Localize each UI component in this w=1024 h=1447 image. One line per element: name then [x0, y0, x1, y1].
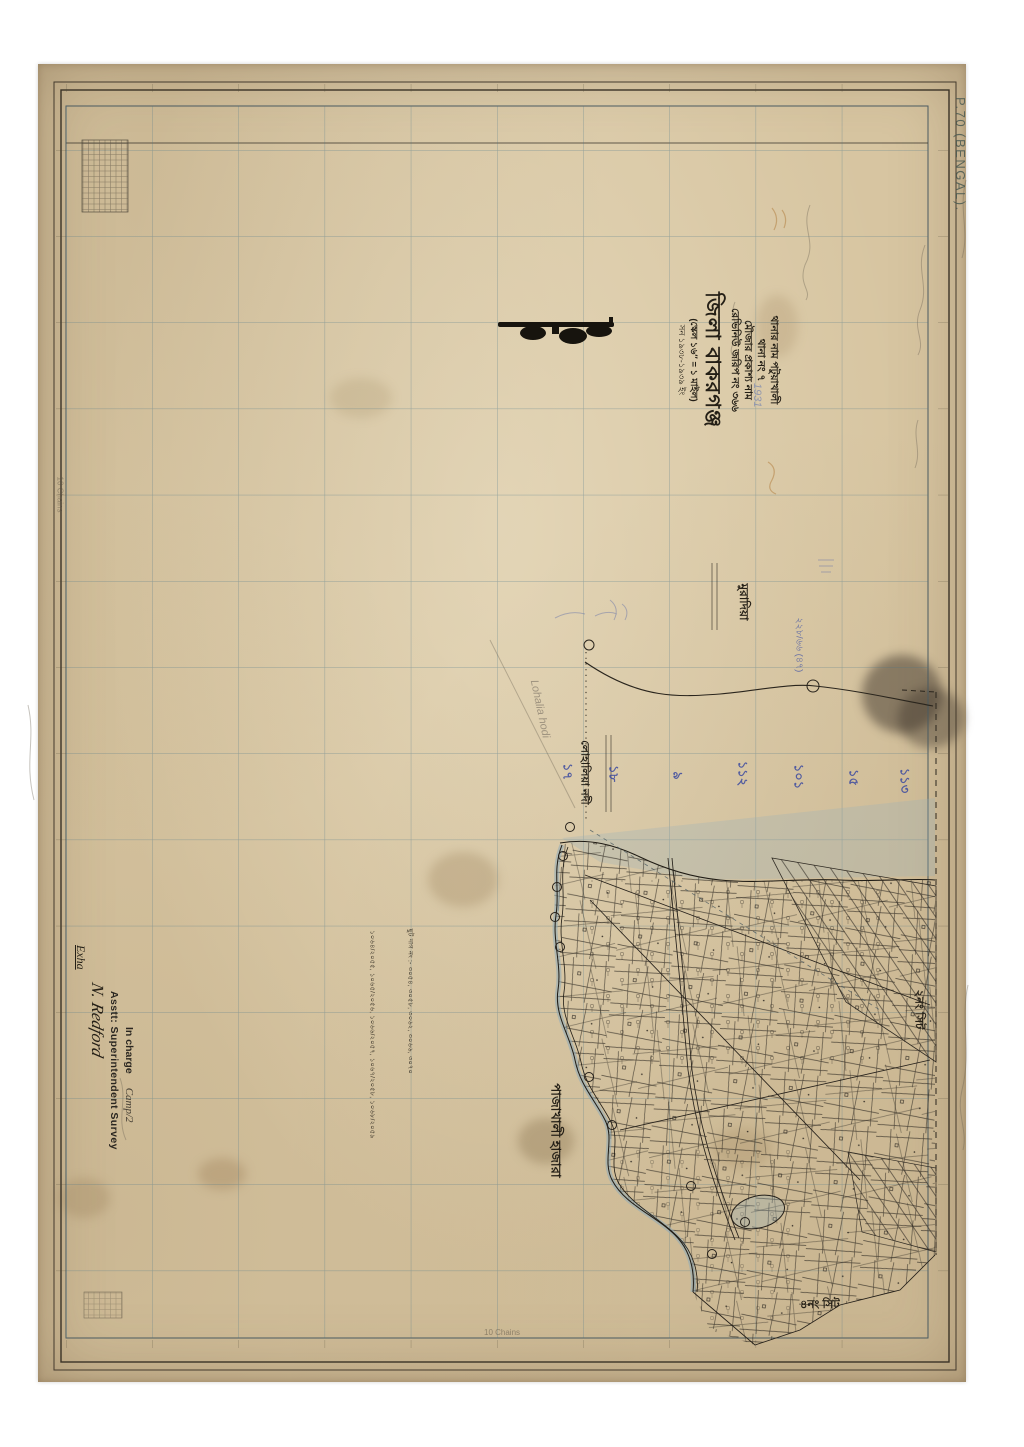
station-number: ৯ — [666, 763, 687, 789]
station-number: ১০১ — [787, 764, 808, 790]
title-block: থানার নাম পটুয়াখালী থানা নং ৭ মৌজার প্র… — [654, 280, 780, 440]
chains-scale-label-bottom: 10 Chains — [484, 1328, 520, 1337]
signature-block: In chargeCamp/2 Asstt: Superintendent Su… — [72, 935, 136, 1145]
village-label-pajakhali: পাজাখালী হাজারা — [544, 1076, 565, 1186]
year-line: সন ১৯৩৮-১৯৩৯ ইং — [676, 280, 687, 440]
map-linework — [0, 0, 1024, 1447]
station-number: ১৭ — [556, 759, 577, 785]
revenue-no-line: রেভিনিউ জরিপ নং ৩৬৬ — [728, 280, 741, 440]
stamp-title: Asstt: Superintendent Survey — [106, 935, 121, 1145]
station-number: ১১২ — [731, 761, 752, 787]
surveyor-signature: N. Redford — [88, 935, 106, 1145]
hand-note-exha: Exha — [73, 935, 88, 1145]
scanned-survey-sheet: P.70 (BENGAL). থানার নাম পটুয়াখালী থানা… — [0, 0, 1024, 1447]
station-number: ১১৩ — [893, 768, 914, 794]
stamp-in-charge: In chargeCamp/2 — [121, 935, 136, 1145]
sheet-note-south: ৪নং সিট — [800, 1296, 840, 1315]
thana-no-line: থানা নং ৭ — [754, 280, 767, 440]
handwritten-year-note: 1931 — [751, 383, 763, 413]
plot-number-notes: ছুট দাগ নং :- ৩০৫৪, ৩০৫৮, ৩০৬২, ৩০৬৬, ৩০… — [405, 929, 416, 1099]
river-label-lohalia: লোহালিয়া নদী — [575, 728, 594, 818]
scale-line: (স্কেল ১৬″ = ১ মাইল) — [687, 280, 699, 440]
station-number: ১৮ — [602, 761, 623, 787]
plate-number-label: P.70 (BENGAL). — [948, 97, 968, 227]
village-label-muradia: মুরাদিয়া — [732, 567, 752, 637]
chains-scale-label-left: 10 Chains — [56, 477, 65, 521]
thana-name-line: থানার নাম পটুয়াখালী — [767, 280, 780, 440]
blue-fraction-note: ২২৮/৬৬ (৪৭) — [791, 618, 806, 682]
mouza-name-line: মৌজার প্রকাশ্য নাম — [741, 280, 754, 440]
plot-number-notes: ১০৬৪/২০৫৫, ১০৬৫/২০৫৬, ১০৬৬/২০৫৭, ১০৬৭/২০… — [367, 931, 378, 1101]
sheet-note-east: ২নং সিট — [909, 982, 928, 1038]
camp-note: Camp/2 — [123, 1088, 135, 1123]
station-number: ১৫ — [842, 765, 863, 791]
district-title: জিলা বাকরগঞ্জ — [699, 280, 726, 440]
